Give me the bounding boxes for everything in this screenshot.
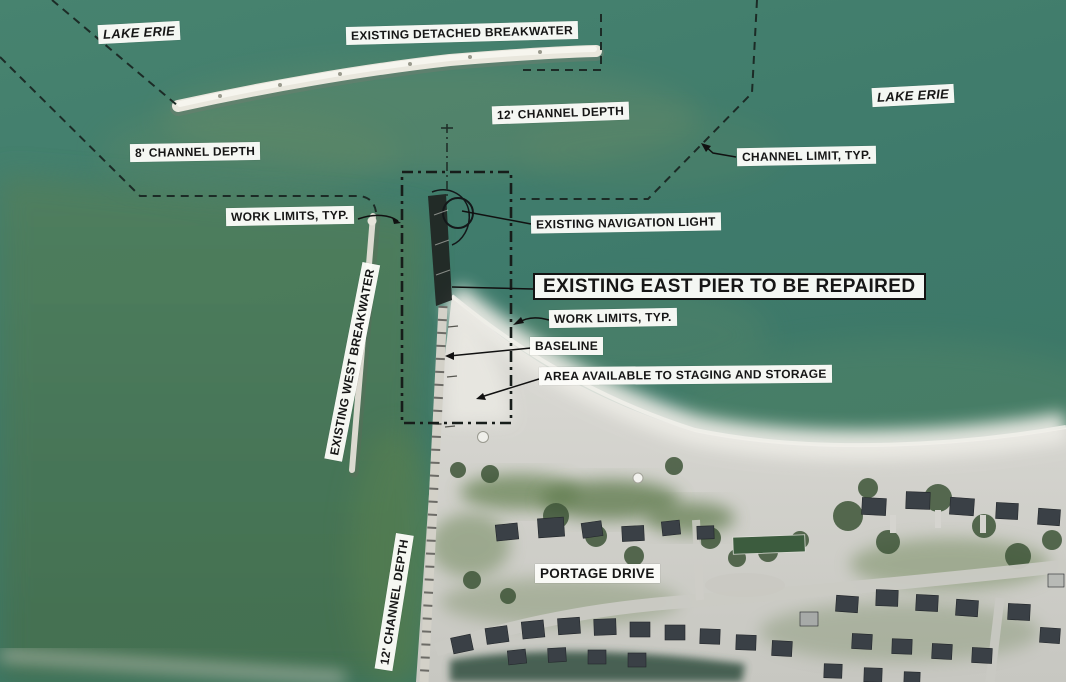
label-existing-navigation-light: EXISTING NAVIGATION LIGHT <box>531 212 721 233</box>
white-tank <box>478 432 489 443</box>
label-baseline: BASELINE <box>530 337 603 355</box>
aerial-plan-map: LAKE ERIE EXISTING DETACHED BREAKWATER L… <box>0 0 1066 682</box>
water-tower <box>633 473 643 483</box>
label-work-limits-typ-center: WORK LIMITS, TYP. <box>549 308 677 328</box>
label-channel-depth-8: 8' CHANNEL DEPTH <box>130 142 260 162</box>
label-work-limits-typ-left: WORK LIMITS, TYP. <box>226 206 354 226</box>
label-staging-area: AREA AVAILABLE TO STAGING AND STORAGE <box>539 365 832 385</box>
label-channel-limit-typ: CHANNEL LIMIT, TYP. <box>737 146 877 166</box>
label-existing-east-pier-to-be-repaired: EXISTING EAST PIER TO BE REPAIRED <box>533 273 926 300</box>
label-portage-drive: PORTAGE DRIVE <box>535 564 660 583</box>
